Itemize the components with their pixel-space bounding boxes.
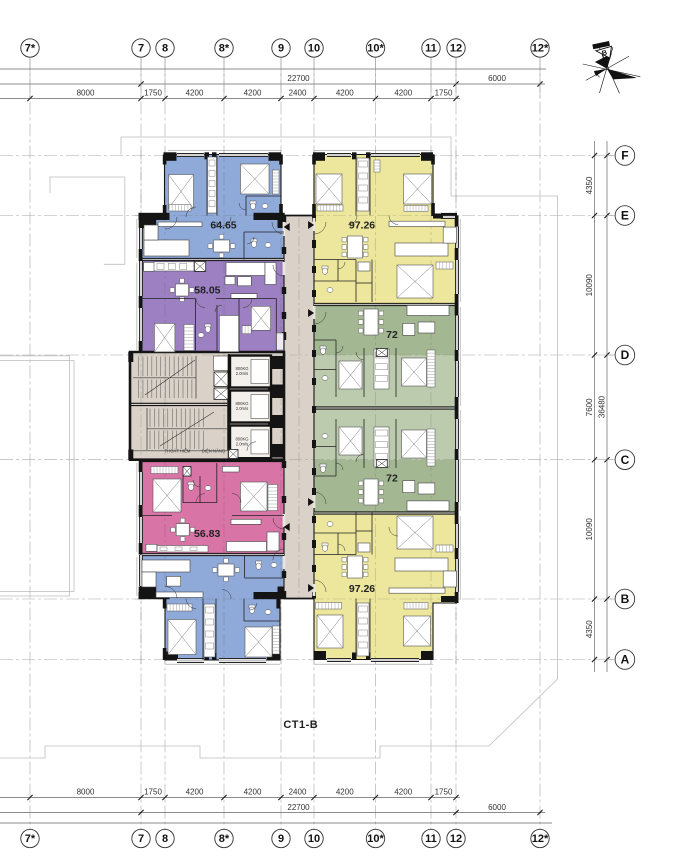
svg-text:6000: 6000 bbox=[488, 803, 506, 812]
svg-text:1750: 1750 bbox=[144, 89, 162, 98]
svg-text:64.65: 64.65 bbox=[210, 220, 236, 232]
svg-text:F: F bbox=[621, 149, 628, 163]
svg-text:22700: 22700 bbox=[287, 803, 310, 812]
svg-text:C: C bbox=[621, 453, 630, 467]
svg-text:7*: 7* bbox=[25, 43, 36, 55]
svg-text:2.0m/s: 2.0m/s bbox=[236, 371, 249, 376]
svg-text:9: 9 bbox=[278, 43, 284, 55]
svg-text:11: 11 bbox=[425, 43, 437, 55]
svg-text:1750: 1750 bbox=[435, 788, 453, 797]
svg-text:4200: 4200 bbox=[244, 788, 262, 797]
svg-text:7: 7 bbox=[138, 43, 144, 55]
svg-text:A: A bbox=[621, 653, 630, 667]
svg-text:4200: 4200 bbox=[336, 89, 354, 98]
svg-text:7: 7 bbox=[138, 833, 144, 845]
svg-text:10: 10 bbox=[308, 833, 320, 845]
svg-text:4200: 4200 bbox=[394, 788, 412, 797]
svg-text:6000: 6000 bbox=[488, 74, 506, 83]
svg-text:10: 10 bbox=[308, 43, 320, 55]
svg-text:4350: 4350 bbox=[585, 620, 594, 638]
svg-text:E: E bbox=[621, 209, 629, 223]
svg-text:12: 12 bbox=[450, 833, 462, 845]
svg-text:12*: 12* bbox=[532, 43, 549, 55]
svg-text:8: 8 bbox=[162, 833, 168, 845]
svg-text:4200: 4200 bbox=[186, 89, 204, 98]
svg-text:7600: 7600 bbox=[585, 398, 594, 416]
svg-text:11: 11 bbox=[425, 833, 437, 845]
svg-text:22700: 22700 bbox=[287, 74, 310, 83]
svg-text:12*: 12* bbox=[532, 833, 549, 845]
svg-text:97.26: 97.26 bbox=[349, 583, 375, 595]
svg-text:ĐIỆN NĂNG: ĐIỆN NĂNG bbox=[202, 449, 225, 454]
svg-text:1750: 1750 bbox=[435, 89, 453, 98]
svg-text:8000: 8000 bbox=[77, 89, 95, 98]
svg-text:10*: 10* bbox=[367, 43, 384, 55]
svg-text:4350: 4350 bbox=[585, 176, 594, 194]
svg-text:4200: 4200 bbox=[244, 89, 262, 98]
svg-text:THOÁT HIỂM: THOÁT HIỂM bbox=[165, 449, 191, 454]
svg-text:97.26: 97.26 bbox=[349, 220, 375, 232]
svg-text:2400: 2400 bbox=[289, 89, 307, 98]
svg-text:4200: 4200 bbox=[394, 89, 412, 98]
svg-text:2.0m/s: 2.0m/s bbox=[236, 406, 249, 411]
svg-text:7*: 7* bbox=[25, 833, 36, 845]
svg-text:12: 12 bbox=[450, 43, 462, 55]
svg-text:D: D bbox=[621, 348, 630, 362]
svg-text:8: 8 bbox=[162, 43, 168, 55]
svg-text:72: 72 bbox=[386, 473, 398, 485]
svg-text:4200: 4200 bbox=[186, 788, 204, 797]
svg-text:8*: 8* bbox=[219, 833, 230, 845]
svg-text:1750: 1750 bbox=[144, 788, 162, 797]
svg-text:2.0m/s: 2.0m/s bbox=[236, 441, 249, 446]
svg-text:10090: 10090 bbox=[585, 274, 594, 297]
svg-text:36480: 36480 bbox=[598, 395, 607, 418]
svg-text:72: 72 bbox=[386, 329, 398, 341]
svg-text:8*: 8* bbox=[219, 43, 230, 55]
svg-text:CT1-B: CT1-B bbox=[283, 719, 318, 731]
svg-text:9: 9 bbox=[278, 833, 284, 845]
svg-text:B: B bbox=[621, 592, 630, 606]
svg-text:2400: 2400 bbox=[289, 788, 307, 797]
svg-text:4200: 4200 bbox=[336, 788, 354, 797]
svg-text:8000: 8000 bbox=[77, 788, 95, 797]
svg-text:56.83: 56.83 bbox=[194, 528, 220, 540]
svg-text:10*: 10* bbox=[367, 833, 384, 845]
svg-text:10090: 10090 bbox=[585, 518, 594, 541]
svg-text:58.05: 58.05 bbox=[194, 284, 220, 296]
